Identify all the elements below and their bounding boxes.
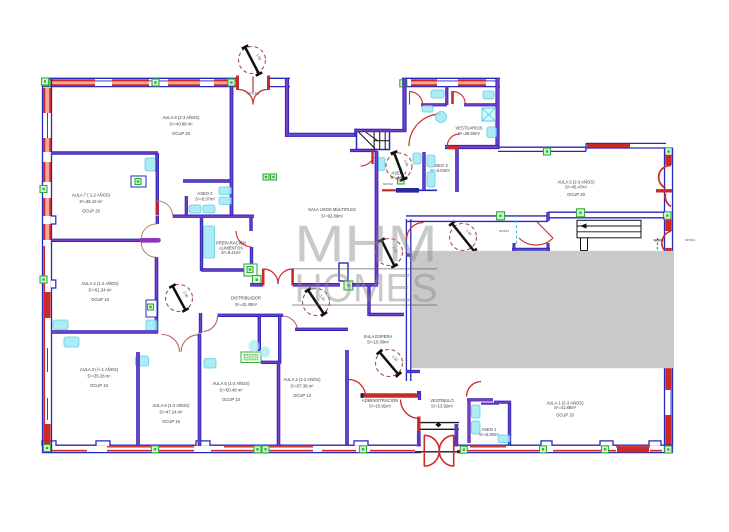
svg-text:S²=36.16 m²: S²=36.16 m²	[79, 199, 103, 204]
svg-text:S²=35.28 m²: S²=35.28 m²	[87, 373, 111, 378]
svg-text:NOTA2: NOTA2	[383, 182, 393, 186]
svg-text:OCUP 20: OCUP 20	[172, 131, 191, 136]
svg-text:AULA 4 (1-2 AÑOS): AULA 4 (1-2 AÑOS)	[81, 281, 119, 286]
svg-text:OCUP 10: OCUP 10	[91, 297, 110, 302]
svg-text:VESTUARIOS: VESTUARIOS	[456, 126, 483, 131]
svg-text:S²=10.92m²: S²=10.92m²	[369, 404, 392, 409]
svg-text:VESTÍBULO: VESTÍBULO	[430, 398, 454, 403]
svg-text:S²=8.37m²: S²=8.37m²	[195, 197, 215, 202]
svg-text:S²=42.40m²: S²=42.40m²	[235, 302, 258, 307]
svg-text:S²=10.30m²: S²=10.30m²	[367, 340, 390, 345]
svg-text:S²=40.47m²: S²=40.47m²	[565, 184, 588, 189]
svg-text:NOTA1: NOTA1	[685, 238, 695, 242]
svg-text:S²=28.50m²: S²=28.50m²	[458, 131, 481, 136]
svg-text:OCUP 10: OCUP 10	[90, 383, 109, 388]
svg-text:S²=40.98 m²: S²=40.98 m²	[169, 121, 193, 126]
svg-text:NOTA1: NOTA1	[499, 229, 509, 233]
svg-text:AULA 2 (1-2 AÑOS): AULA 2 (1-2 AÑOS)	[283, 377, 321, 382]
svg-text:ADMINISTRACIÓN: ADMINISTRACIÓN	[362, 398, 398, 403]
svg-text:OCUP 13: OCUP 13	[293, 393, 312, 398]
svg-text:SALA ESPERA: SALA ESPERA	[364, 334, 393, 339]
svg-text:OCUP 16: OCUP 16	[162, 419, 181, 424]
svg-text:AULA 5 (1-2 AÑOS): AULA 5 (1-2 AÑOS)	[212, 381, 250, 386]
svg-text:S²=50.48 m²: S²=50.48 m²	[219, 387, 243, 392]
svg-text:S²=51.34 m²: S²=51.34 m²	[88, 287, 112, 292]
svg-text:OCUP 10: OCUP 10	[222, 397, 241, 402]
svg-text:AULA 8 (2-3 AÑOS): AULA 8 (2-3 AÑOS)	[162, 115, 200, 120]
svg-text:S²=5.30m²: S²=5.30m²	[479, 432, 499, 437]
svg-text:S²=8.41m²: S²=8.41m²	[221, 250, 241, 255]
svg-text:AULA 6 (1-2 AÑOS): AULA 6 (1-2 AÑOS)	[152, 403, 190, 408]
svg-text:HOMES: HOMES	[295, 267, 438, 311]
svg-text:S²=47.24 m²: S²=47.24 m²	[159, 409, 183, 414]
svg-text:S²=41.88m²: S²=41.88m²	[554, 405, 577, 410]
svg-text:NÚCLEO: NÚCLEO	[246, 91, 260, 96]
svg-text:NOTA1: NOTA1	[654, 239, 664, 243]
svg-text:MHM: MHM	[295, 216, 438, 274]
svg-text:DISTRIBUIDOR: DISTRIBUIDOR	[231, 296, 261, 301]
svg-text:S²=13.92m²: S²=13.92m²	[431, 404, 454, 409]
svg-text:AULA 3 (+/-1 AÑOS): AULA 3 (+/-1 AÑOS)	[80, 367, 119, 372]
svg-text:OCUP 20: OCUP 20	[567, 192, 586, 197]
svg-text:AULA 7 ( 1-2 AÑOS): AULA 7 ( 1-2 AÑOS)	[72, 193, 111, 198]
svg-text:OCUP 20: OCUP 20	[556, 413, 575, 418]
svg-text:S²=57.36 m²: S²=57.36 m²	[290, 383, 314, 388]
svg-text:SALA USOS MÚLTIPLES: SALA USOS MÚLTIPLES	[308, 207, 356, 212]
svg-text:ASEO 2: ASEO 2	[197, 191, 213, 196]
svg-text:OCUP 20: OCUP 20	[82, 209, 101, 214]
